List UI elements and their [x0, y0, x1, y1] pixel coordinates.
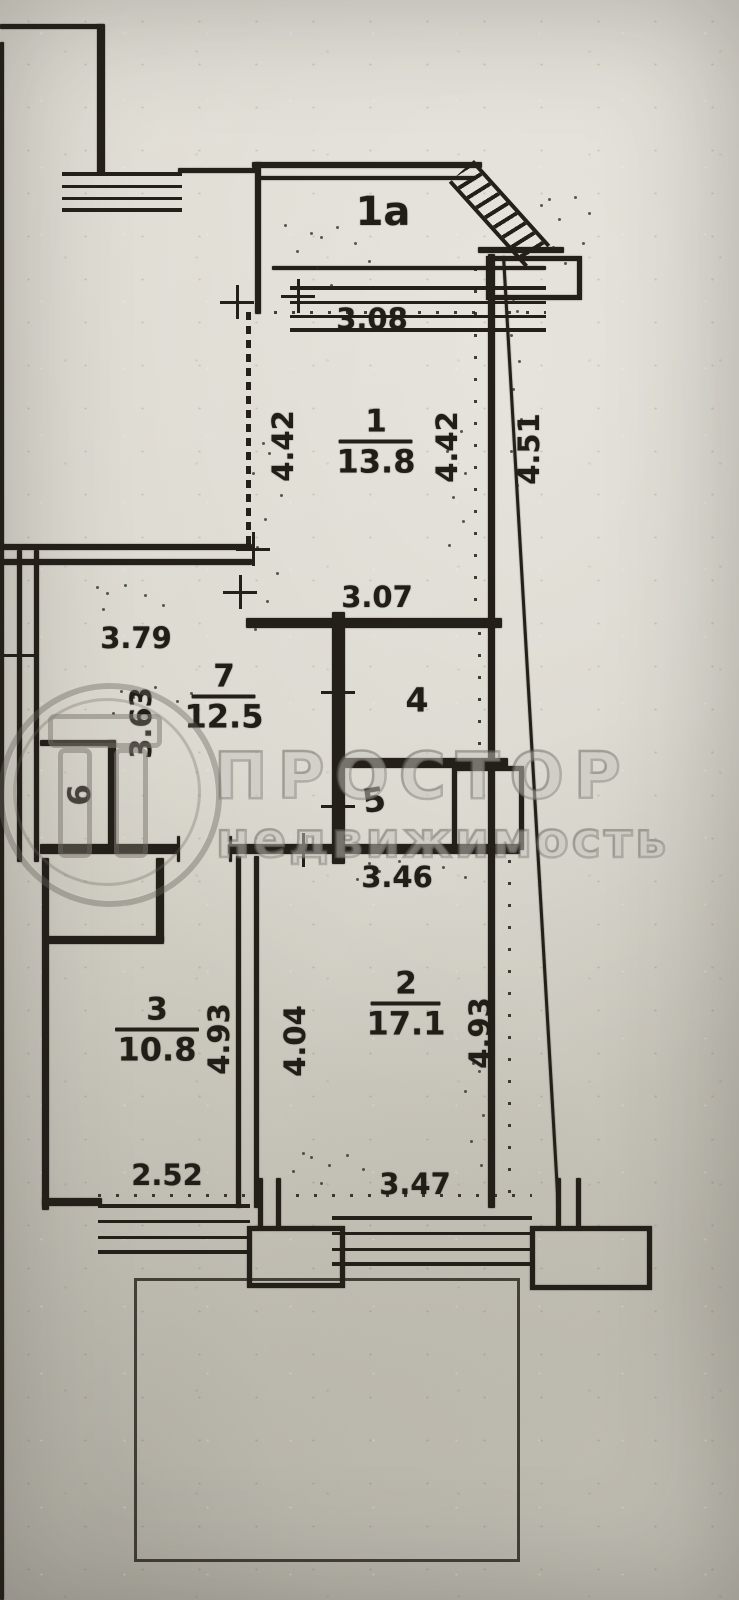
- wall-segment: [42, 858, 49, 1210]
- ink-speckles: [548, 198, 551, 201]
- room-label-6: 6: [62, 784, 98, 806]
- dim-room1-left: 4.42: [266, 410, 300, 482]
- window: [62, 172, 182, 212]
- dimension-tick: [321, 675, 355, 709]
- dimension-tick: [286, 833, 320, 867]
- watermark-subtitle: недвижимость: [216, 812, 669, 869]
- room-number: 1: [365, 407, 387, 438]
- dim-balcony-width: 3.08: [336, 302, 408, 336]
- room-label-7: 7 12.5: [185, 662, 264, 733]
- dotted-line: [98, 1194, 532, 1197]
- room-number: 2: [395, 969, 417, 1000]
- dim-hall-width: 3.46: [361, 860, 433, 894]
- dimension-tick: [321, 789, 355, 823]
- wall-segment: [228, 844, 520, 854]
- room-label-5: 5: [360, 779, 389, 821]
- door-jamb: [229, 836, 232, 862]
- wall-segment: [0, 42, 4, 1600]
- room-number: 1а: [356, 192, 411, 232]
- dim-room1-right: 4.42: [430, 411, 464, 483]
- room-label-4: 4: [406, 681, 429, 720]
- dotted-line: [508, 860, 511, 1205]
- wall-segment: [254, 856, 259, 1208]
- dim-room2-left: 4.04: [278, 1005, 312, 1077]
- wall-segment: [0, 24, 104, 29]
- dotted-line: [478, 632, 481, 758]
- wall-segment: [40, 740, 116, 746]
- dotted-line: [474, 268, 477, 604]
- dimension-tick: [1, 638, 35, 672]
- ink-speckles: [120, 690, 123, 693]
- wall-segment: [156, 858, 164, 942]
- wall-segment: [276, 1178, 281, 1228]
- wall-segment: [42, 1198, 102, 1206]
- watermark-brand: ПРОСТОР: [214, 740, 631, 814]
- wall-segment: [556, 1178, 561, 1230]
- dim-outer-right: 4.51: [512, 413, 546, 485]
- wall-segment: [108, 740, 116, 850]
- wall-segment: [97, 24, 105, 174]
- room-area: 13.8: [337, 446, 416, 478]
- room-label-1: 1 13.8: [337, 407, 416, 478]
- dimension-tick: [223, 575, 257, 609]
- room-label-2: 2 17.1: [367, 969, 446, 1040]
- window: [332, 1216, 532, 1266]
- wall-segment: [178, 168, 256, 173]
- room-number: 7: [213, 662, 235, 693]
- ink-speckles: [310, 232, 313, 235]
- window: [98, 1204, 250, 1254]
- wall-segment: [236, 856, 241, 1208]
- watermark-logo-glyph: [114, 748, 148, 858]
- ink-speckles: [512, 300, 515, 303]
- dim-room7-top: 3.79: [100, 621, 172, 655]
- dim-room2-bottom: 3.47: [379, 1167, 451, 1201]
- dimension-tick: [281, 279, 315, 313]
- wall-segment: [258, 176, 476, 180]
- dimension-tick: [236, 532, 270, 566]
- wall-pier: [530, 1226, 652, 1290]
- wall-segment: [34, 550, 39, 862]
- room-number: 3: [146, 995, 168, 1026]
- dim-room2-height: 4.93: [463, 997, 497, 1069]
- wall-segment: [332, 612, 345, 864]
- wall-segment: [258, 1178, 263, 1228]
- wall-segment: [246, 618, 502, 628]
- dim-room7-left: 3.63: [124, 687, 158, 759]
- room-area: 12.5: [185, 701, 264, 733]
- door-jamb: [177, 836, 180, 862]
- ink-speckles: [302, 1152, 305, 1155]
- dim-room3-bottom: 2.52: [131, 1158, 203, 1192]
- dim-room3-height: 4.93: [202, 1003, 236, 1075]
- dimension-tick: [220, 285, 254, 319]
- room-label-3: 3 10.8: [115, 995, 199, 1066]
- dim-room1-bottom: 3.07: [341, 580, 413, 614]
- room-label-1a: 1а: [356, 192, 411, 232]
- room-area: 10.8: [118, 1034, 197, 1066]
- ventilation-shaft: [452, 766, 524, 850]
- wall-segment: [255, 162, 261, 314]
- room-area: 17.1: [367, 1008, 446, 1040]
- ink-speckles: [262, 442, 265, 445]
- wall-segment: [576, 1178, 581, 1230]
- floor-plan-photo: 1а 1 13.8 7 12.5 4 5 6 3 10.8 2 17.1 3.0…: [0, 0, 739, 1600]
- wall-segment: [17, 550, 22, 862]
- ink-speckles: [96, 586, 99, 589]
- wall-segment: [252, 162, 482, 168]
- lower-balcony-outline: [134, 1278, 520, 1562]
- dashed-wall: [246, 312, 251, 544]
- wall-segment: [478, 247, 564, 253]
- wall-segment: [48, 936, 164, 944]
